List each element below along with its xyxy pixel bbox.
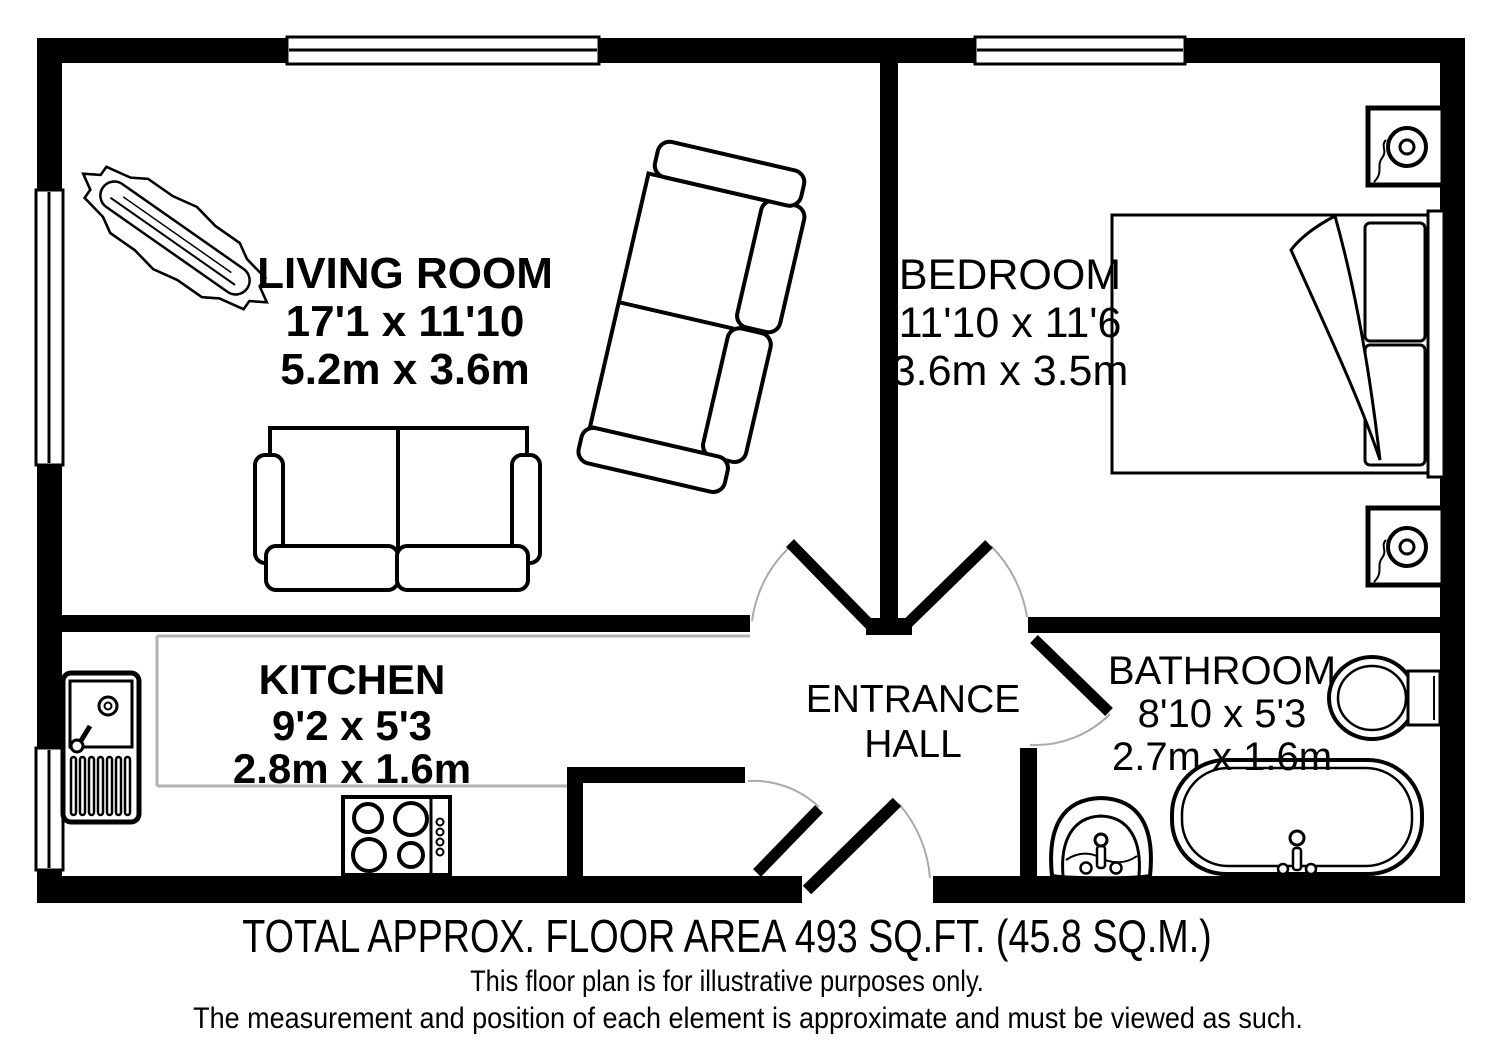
- door-living-room: [752, 543, 870, 625]
- bathroom-name: BATHROOM: [1108, 649, 1336, 693]
- bed-pillow-top: [1365, 223, 1425, 341]
- bed: [1112, 211, 1444, 477]
- nightstand-bottom: [1368, 508, 1443, 585]
- bed-headboard: [1428, 211, 1444, 477]
- wall-bedroom-bathroom: [1028, 617, 1440, 633]
- sofa-cushion-left: [266, 546, 398, 590]
- kitchen-sink: [63, 673, 139, 822]
- wall-bathroom-stub: [1020, 748, 1037, 878]
- bath-tap: [1290, 831, 1304, 845]
- sofa: [255, 428, 540, 590]
- door-entrance: [807, 802, 930, 890]
- wall-closet-left: [567, 767, 583, 878]
- wall-living-kitchen: [62, 615, 750, 632]
- floor-plan-svg: LIVING ROOM 17'1 x 11'10 5.2m x 3.6m BED…: [0, 0, 1500, 1057]
- kitchen-metric: 2.8m x 1.6m: [233, 745, 471, 792]
- plant: [61, 143, 288, 334]
- sofa-angled: [576, 137, 814, 498]
- toilet: [1329, 657, 1440, 739]
- bathroom-metric: 2.7m x 1.6m: [1112, 735, 1332, 779]
- door-bedroom: [906, 544, 1027, 625]
- living-room-metric: 5.2m x 3.6m: [280, 345, 530, 394]
- window-living-room-top: [287, 37, 599, 64]
- window-living-room-left: [36, 190, 63, 465]
- disclaimer-line-1: This floor plan is for illustrative purp…: [470, 964, 984, 997]
- toilet-cistern: [1408, 671, 1440, 725]
- entrance-hall-line1: ENTRANCE: [806, 678, 1021, 721]
- hob: [343, 797, 450, 875]
- living-room-name: LIVING ROOM: [257, 249, 553, 298]
- total-floor-area: TOTAL APPROX. FLOOR AREA 493 SQ.FT. (45.…: [242, 910, 1211, 961]
- bathroom-label: BATHROOM 8'10 x 5'3 2.7m x 1.6m: [1108, 649, 1336, 779]
- disclaimer-line-2: The measurement and position of each ele…: [193, 1002, 1303, 1036]
- bedroom-label: BEDROOM 11'10 x 11'6 3.6m x 3.5m: [892, 251, 1129, 395]
- entrance-hall-line2: HALL: [864, 723, 962, 766]
- basin-tap: [1097, 846, 1105, 868]
- bedroom-name: BEDROOM: [899, 251, 1121, 299]
- wall-closet-top: [567, 767, 745, 783]
- nightstand-top: [1368, 108, 1443, 185]
- footer: TOTAL APPROX. FLOOR AREA 493 SQ.FT. (45.…: [193, 910, 1303, 1035]
- sink-drainer: [71, 757, 130, 815]
- floor-plan-canvas: LIVING ROOM 17'1 x 11'10 5.2m x 3.6m BED…: [0, 0, 1500, 1057]
- door-closet: [748, 781, 819, 873]
- window-bedroom-top: [975, 37, 1185, 64]
- door-bathroom: [1030, 639, 1110, 745]
- sofa-cushion-right: [397, 546, 528, 590]
- wall-bottom-left-segment: [37, 876, 802, 903]
- window-kitchen-left: [36, 748, 63, 870]
- kitchen-name: KITCHEN: [259, 656, 446, 703]
- bathroom-basin: [1051, 798, 1151, 878]
- wall-living-bedroom: [880, 63, 898, 623]
- bedroom-imperial: 11'10 x 11'6: [899, 299, 1122, 347]
- wall-bottom-right-segment: [933, 876, 1465, 903]
- living-room-imperial: 17'1 x 11'10: [286, 297, 525, 346]
- kitchen-imperial: 9'2 x 5'3: [272, 702, 432, 749]
- bathroom-imperial: 8'10 x 5'3: [1138, 692, 1307, 736]
- sink-basin: [70, 681, 132, 747]
- living-room-label: LIVING ROOM 17'1 x 11'10 5.2m x 3.6m: [257, 249, 553, 394]
- bedroom-metric: 3.6m x 3.5m: [892, 347, 1129, 395]
- entrance-hall-label: ENTRANCE HALL: [806, 678, 1021, 766]
- kitchen-label: KITCHEN 9'2 x 5'3 2.8m x 1.6m: [233, 656, 471, 792]
- wall-top: [37, 38, 1465, 63]
